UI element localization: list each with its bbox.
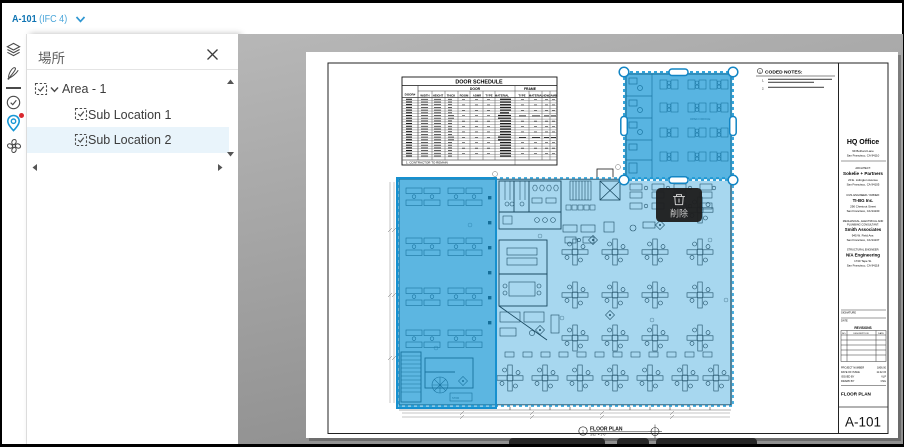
svg-text:A-101: A-101 — [845, 415, 881, 430]
svg-text:PROJECT NUMBER: PROJECT NUMBER — [841, 367, 864, 370]
svg-text:FRAME: FRAME — [524, 87, 537, 91]
svg-text:San Francisco, CA 94137: San Francisco, CA 94137 — [847, 238, 880, 242]
svg-text:ARCHITECT:: ARCHITECT: — [855, 166, 871, 170]
svg-text:Smith Associates: Smith Associates — [845, 227, 882, 232]
svg-text:2.: 2. — [762, 86, 765, 90]
svg-text:1. CONTRACTOR TO REMAIN: 1. CONTRACTOR TO REMAIN — [406, 161, 448, 165]
svg-text:San Francisco, CA 94110: San Francisco, CA 94110 — [847, 154, 880, 158]
svg-text:Sokelie + Partners: Sokelie + Partners — [843, 171, 883, 176]
svg-text:San Francisco, CA 94105: San Francisco, CA 94105 — [847, 183, 880, 187]
svg-text:TYPE: TYPE — [485, 94, 492, 98]
svg-text:DATE OF ISSUE: DATE OF ISSUE — [841, 371, 860, 374]
svg-text:DESCRIPTION: DESCRIPTION — [854, 333, 869, 335]
svg-text:SIGNATURE: SIGNATURE — [841, 311, 856, 315]
svg-text:TI-BG Inc.: TI-BG Inc. — [853, 198, 874, 203]
svg-text:VLP: VLP — [881, 376, 886, 379]
svg-text:NO.: NO. — [842, 333, 846, 335]
svg-text:1740 Tape St.: 1740 Tape St. — [854, 259, 872, 263]
svg-text:CIVIL ENGINEER / OWNER:: CIVIL ENGINEER / OWNER: — [846, 193, 880, 197]
svg-text:TYPE: TYPE — [518, 94, 525, 98]
svg-text:削除: 削除 — [670, 208, 688, 219]
svg-text:San Francisco, CA 94118: San Francisco, CA 94118 — [847, 264, 880, 268]
svg-text:DATE: DATE — [878, 332, 884, 335]
svg-text:PLUMBING CONSULTANT:: PLUMBING CONSULTANT: — [847, 223, 879, 227]
svg-text:99 Bothard Lane: 99 Bothard Lane — [852, 149, 874, 153]
svg-text:ROOM: ROOM — [460, 94, 469, 98]
svg-text:1.: 1. — [762, 78, 765, 82]
svg-text:20 E. Lidington Avenue: 20 E. Lidington Avenue — [848, 178, 878, 182]
svg-text:ADMR: ADMR — [473, 94, 481, 98]
svg-text:945 W. Field Ave.: 945 W. Field Ave. — [852, 234, 875, 238]
svg-text:MATERIAL: MATERIAL — [529, 94, 544, 98]
svg-text:1806.00: 1806.00 — [877, 367, 887, 370]
svg-text:N/A Engineering: N/A Engineering — [846, 253, 880, 258]
svg-text:11.02.15: 11.02.15 — [876, 371, 886, 374]
svg-text:ISSUED BY: ISSUED BY — [841, 376, 855, 379]
svg-text:DRAWN BY: DRAWN BY — [841, 380, 855, 383]
svg-text:DOOR SCHEDULE: DOOR SCHEDULE — [455, 80, 503, 86]
svg-text:STRUCTURAL ENGINEER:: STRUCTURAL ENGINEER: — [847, 248, 880, 252]
svg-text:San Francisco, CA 94130: San Francisco, CA 94130 — [847, 209, 880, 213]
svg-text:1: 1 — [759, 70, 761, 74]
svg-text:DOOR#: DOOR# — [405, 93, 416, 97]
svg-text:MATERIAL: MATERIAL — [495, 94, 510, 98]
svg-text:REVISIONS: REVISIONS — [854, 326, 871, 330]
svg-text:HEIGHT: HEIGHT — [433, 94, 444, 98]
svg-text:MECHANICAL, ELECTRICAL AND: MECHANICAL, ELECTRICAL AND — [843, 219, 884, 223]
svg-text:CSG: CSG — [881, 380, 886, 383]
svg-text:DATE: DATE — [841, 319, 848, 323]
svg-text:HQ Office: HQ Office — [847, 139, 879, 146]
svg-text:DOOR: DOOR — [470, 87, 481, 91]
svg-text:3/32" = 1'-0": 3/32" = 1'-0" — [590, 433, 606, 437]
svg-text:CODED NOTES:: CODED NOTES: — [765, 70, 803, 76]
svg-text:290 Chestnut Street: 290 Chestnut Street — [850, 205, 876, 209]
svg-text:WIDTH: WIDTH — [420, 94, 429, 98]
svg-text:THICK: THICK — [447, 94, 456, 98]
svg-text:FLOOR PLAN: FLOOR PLAN — [841, 392, 872, 397]
